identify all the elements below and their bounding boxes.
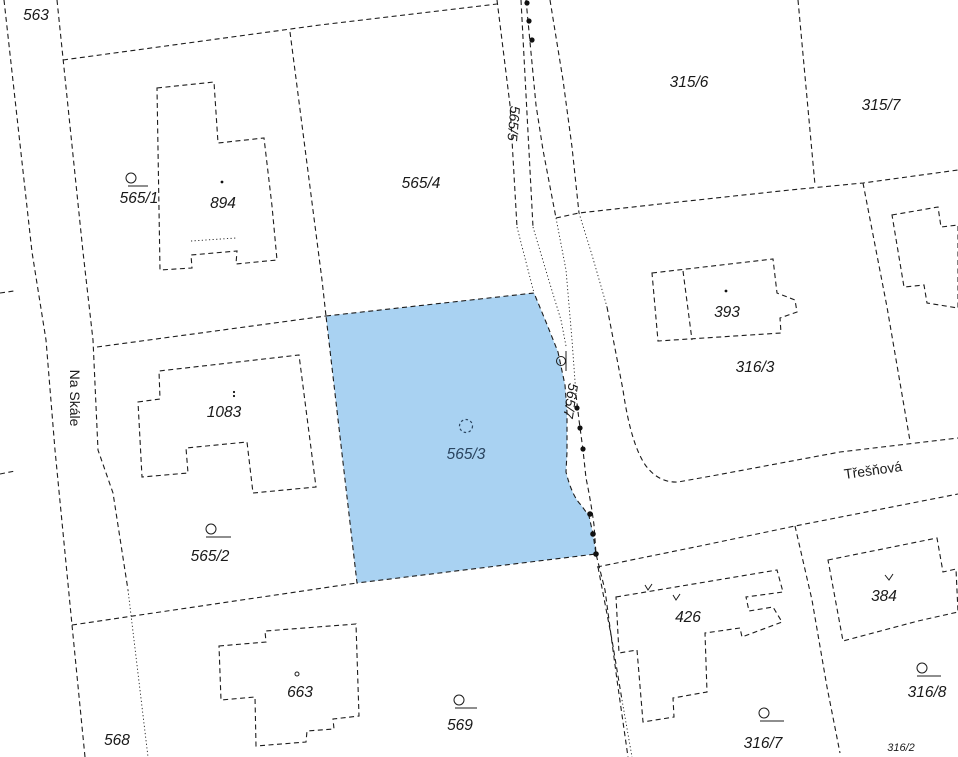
building-label-894: 894 — [210, 195, 236, 212]
street-label-tresnova: Třešňová — [843, 458, 903, 482]
street-label-na-skale: Na Skále — [67, 370, 83, 427]
parcel-label-316-3: 316/3 — [736, 359, 775, 376]
parcel-label-315-7: 315/7 — [862, 97, 902, 114]
parcel-label-565-3[interactable]: 565/3 — [447, 446, 486, 463]
parcel-label-568: 568 — [104, 732, 130, 749]
parcel-boundary-315-6-315-7 — [798, 0, 815, 185]
landuse-symbol-1083-a — [233, 391, 235, 393]
building-426-outline — [616, 570, 783, 722]
parcel-label-316-7: 316/7 — [744, 735, 784, 752]
parcel-boundary-road-east-dotted — [128, 590, 148, 757]
parcel-boundary-315-316 — [556, 170, 958, 218]
landuse-symbol-1083-b — [233, 395, 235, 397]
cadastral-map-canvas[interactable]: 563 568 565/1 894 565/4 1083 565/2 565/3… — [0, 0, 958, 757]
landuse-symbol-569 — [454, 695, 477, 708]
parcel-label-565-2: 565/2 — [191, 548, 230, 565]
building-label-384: 384 — [871, 588, 897, 605]
parcel-boundary-north — [63, 4, 497, 60]
landuse-symbol-565-1 — [126, 173, 148, 186]
parcel-label-569: 569 — [447, 717, 473, 734]
building-393-outline — [652, 259, 797, 341]
landuse-symbol-316-7 — [759, 708, 784, 721]
landuse-symbol-393 — [725, 290, 728, 293]
road-corridor-line-c — [526, 0, 556, 218]
parcel-boundary-stub-1 — [0, 291, 14, 293]
road-corridor-line-a-curve — [517, 227, 534, 293]
road-corridor-line-d-dotted — [579, 213, 607, 307]
building-label-663: 663 — [287, 684, 313, 701]
parcel-label-316-8: 316/8 — [908, 684, 947, 701]
cadastral-map[interactable]: 563 568 565/1 894 565/4 1083 565/2 565/3… — [0, 0, 958, 757]
parcel-boundary-stub-2 — [0, 471, 15, 474]
parcel-label-565-4: 565/4 — [402, 175, 441, 192]
landuse-symbol-316-8 — [917, 663, 941, 676]
building-label-393: 393 — [714, 304, 740, 321]
landuse-symbol-894 — [221, 181, 224, 184]
parcel-label-565-5: 565/5 — [504, 105, 523, 142]
landuse-symbol-565-2 — [206, 524, 231, 537]
building-top-right-outline — [892, 207, 958, 308]
building-894-outline — [157, 82, 277, 270]
parcel-label-563: 563 — [23, 7, 49, 24]
parcel-boundary-road-east — [57, 0, 128, 590]
parcel-label-316-2: 316/2 — [887, 742, 915, 754]
parcel-boundary-565-1-565-4 — [290, 32, 326, 316]
building-label-426: 426 — [675, 609, 701, 626]
parcel-boundary-565-2-south — [72, 583, 357, 625]
building-1083-outline — [138, 355, 316, 493]
road-corridor-line-d — [550, 0, 579, 213]
parcel-label-315-6: 315/6 — [670, 74, 709, 91]
highlighted-parcel-565-3[interactable] — [326, 293, 596, 583]
building-label-1083: 1083 — [207, 404, 242, 421]
parcel-boundary-565-1-south — [97, 316, 326, 347]
landuse-symbol-426-a — [645, 584, 652, 590]
parcel-label-565-1: 565/1 — [120, 190, 159, 207]
